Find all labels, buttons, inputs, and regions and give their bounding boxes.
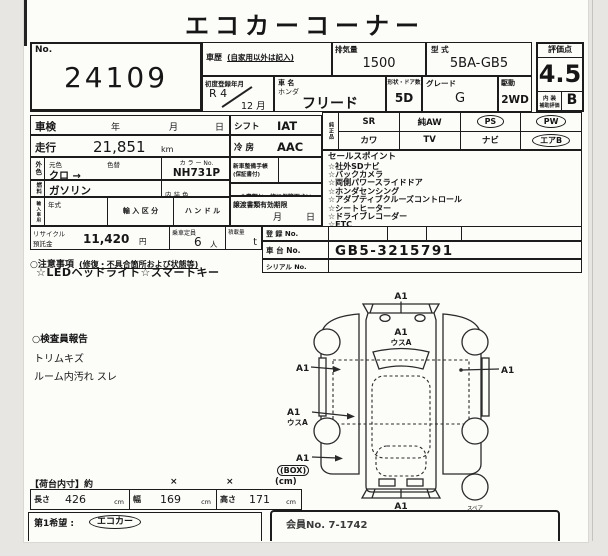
member-no: 会員No. 7-1742: [286, 516, 367, 531]
first-choice-label: 第1希望 :: [34, 516, 74, 529]
footer-clip: 第1希望 : エコカー 会員No. 7-1742: [0, 0, 608, 541]
auction-sheet-scan: エコカーコーナー No. 24109 車歴 (自家用以外は記入) 排気量 150…: [0, 0, 608, 556]
member-no-box: 会員No. 7-1742: [270, 510, 560, 541]
first-choice-value: エコカー: [89, 515, 141, 529]
first-choice-box: 第1希望 : エコカー: [28, 512, 262, 541]
